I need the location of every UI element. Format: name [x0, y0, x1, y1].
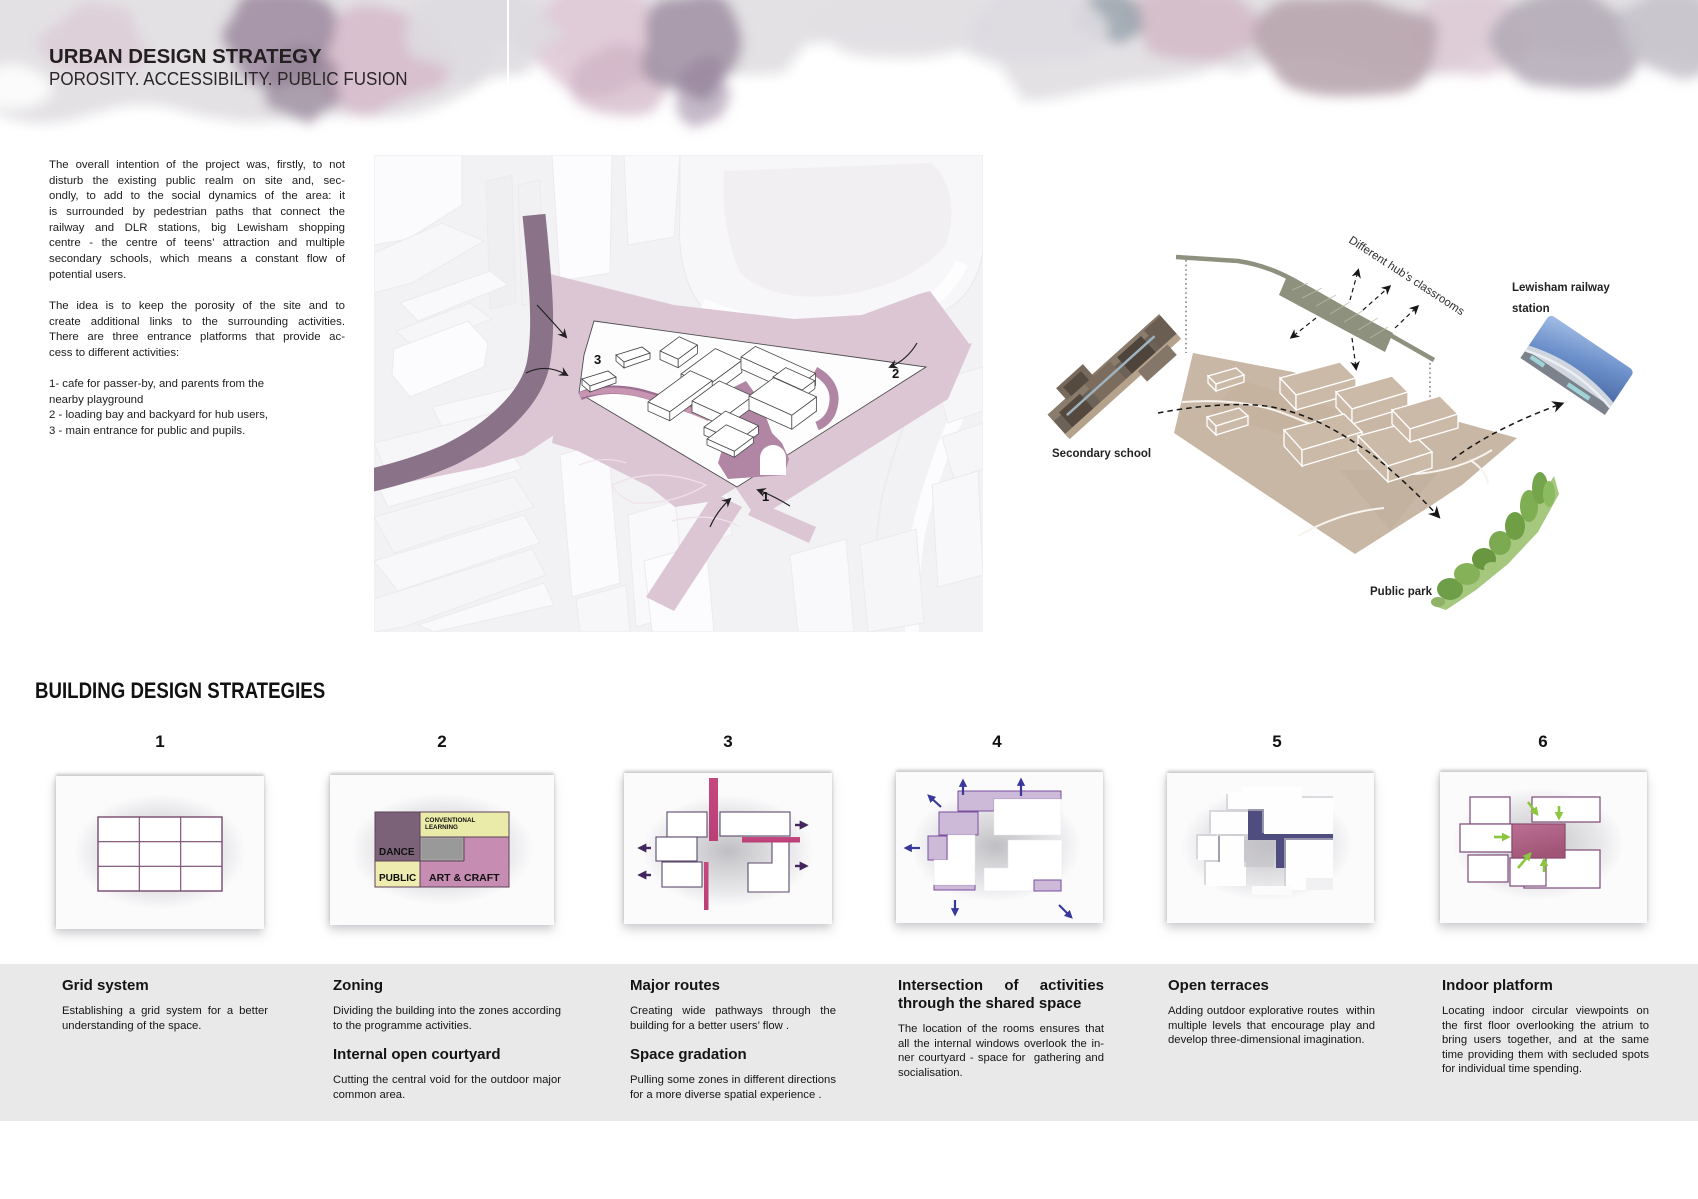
svg-text:station: station [1512, 303, 1550, 315]
svg-text:Public park: Public park [1370, 586, 1433, 598]
svg-text:Different hub’s classrooms: Different hub’s classrooms [1346, 234, 1466, 318]
svg-text:ART & CRAFT: ART & CRAFT [429, 872, 500, 884]
svg-text:CONVENTIONAL: CONVENTIONAL [425, 817, 476, 824]
svg-text:Secondary school: Secondary school [1052, 448, 1151, 460]
svg-text:Lewisham railway: Lewisham railway [1512, 282, 1610, 294]
svg-text:2: 2 [892, 366, 899, 381]
svg-text:LEARNING: LEARNING [425, 824, 458, 831]
svg-text:3: 3 [594, 352, 601, 367]
svg-text:1: 1 [762, 489, 769, 504]
svg-text:PUBLIC: PUBLIC [379, 873, 416, 884]
svg-text:DANCE: DANCE [379, 847, 415, 858]
